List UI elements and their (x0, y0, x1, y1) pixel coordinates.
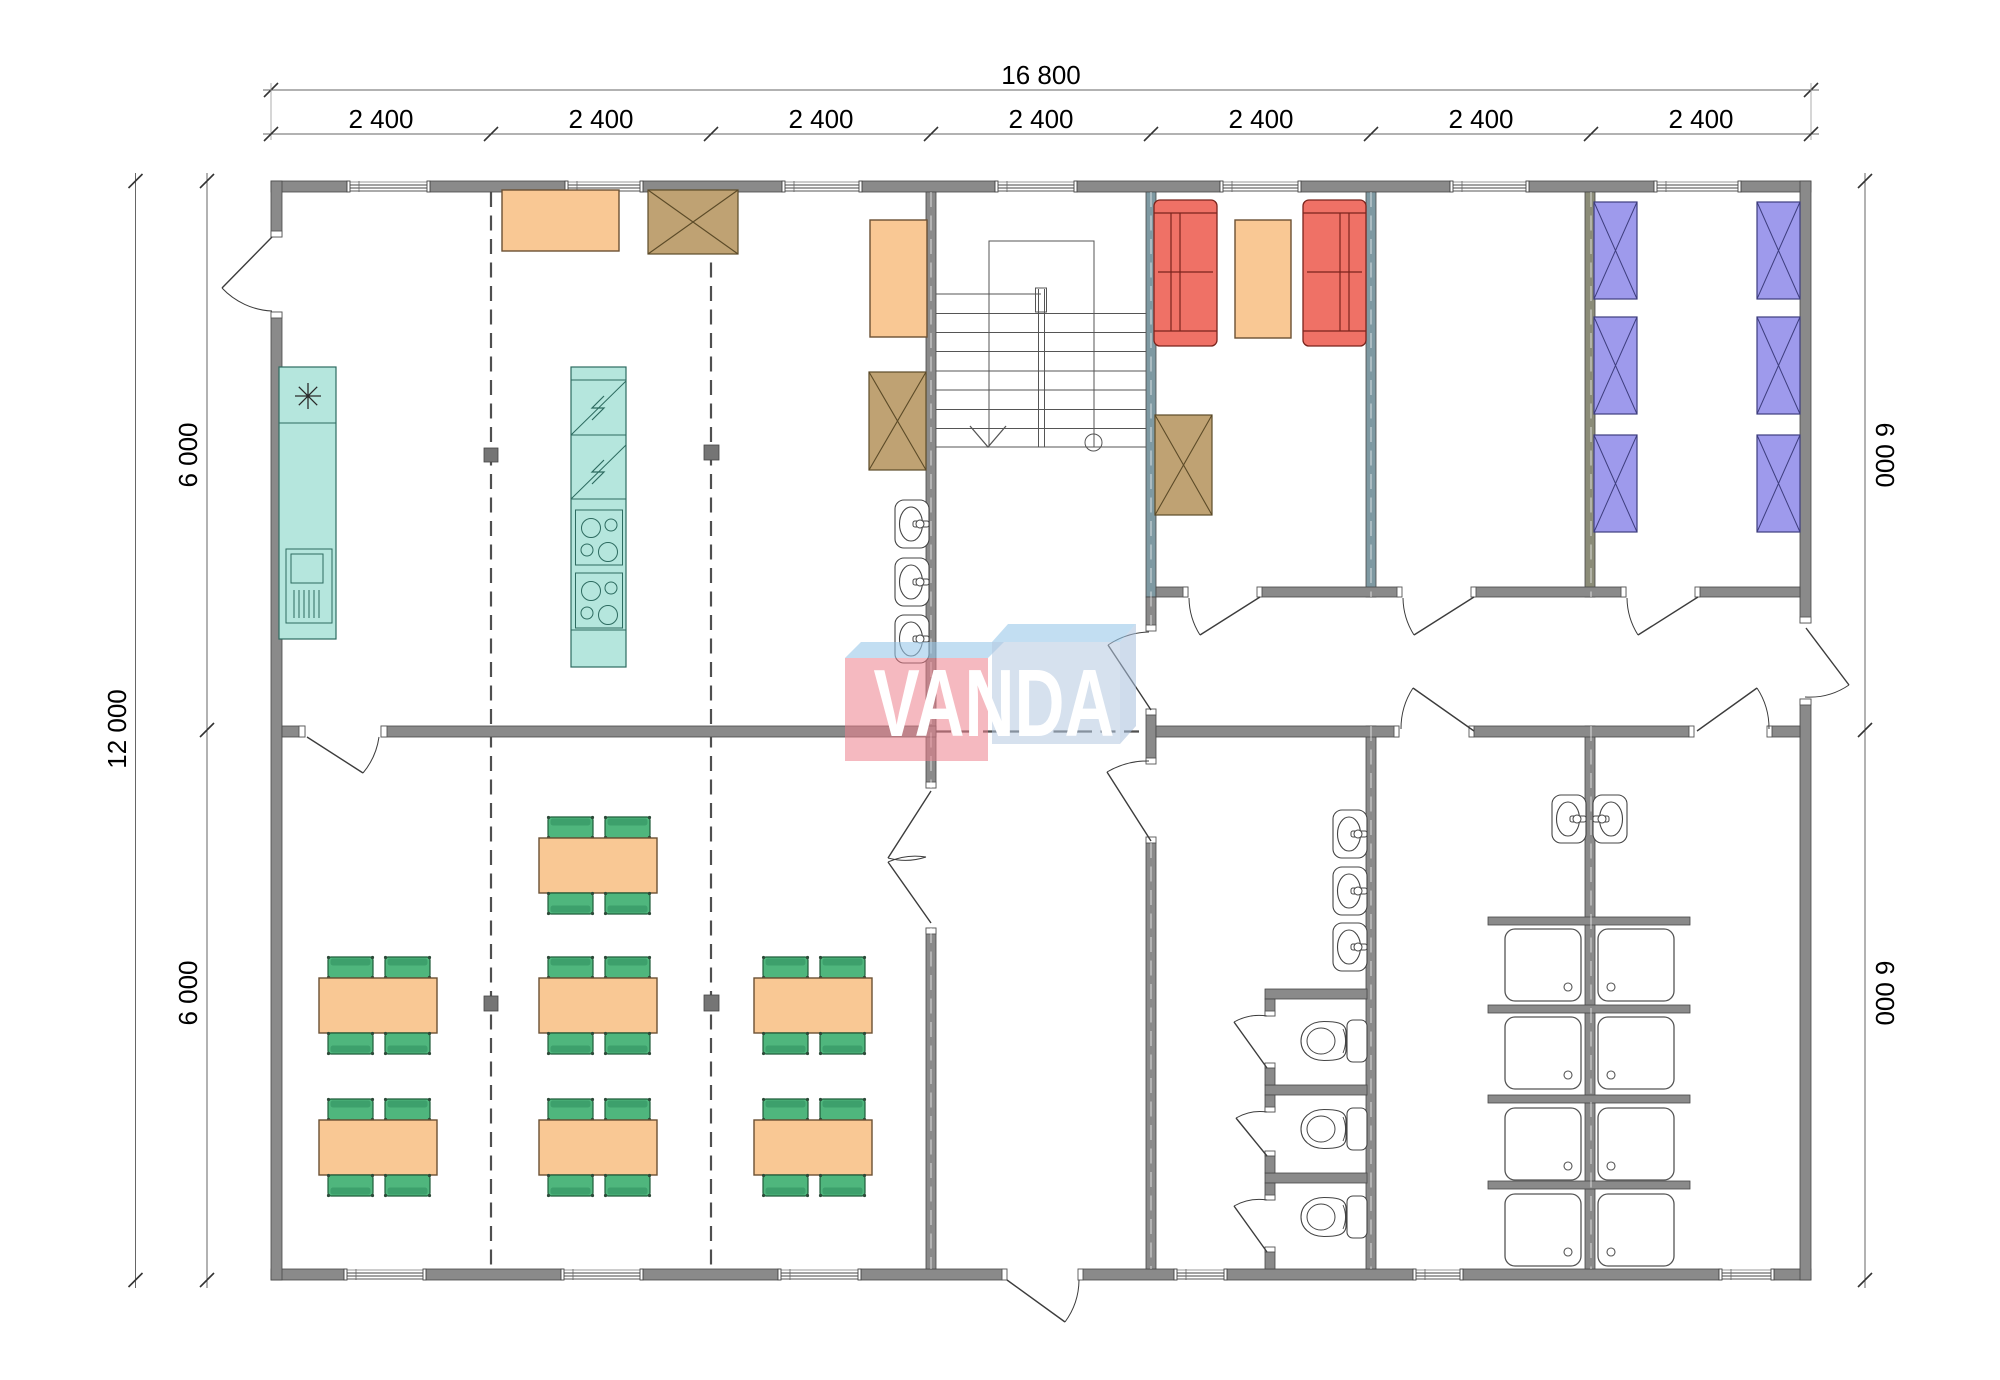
svg-text:6 000: 6 000 (173, 960, 203, 1025)
svg-text:2 400: 2 400 (1008, 104, 1073, 134)
svg-text:VANDA: VANDA (874, 650, 1115, 757)
svg-text:16 800: 16 800 (1001, 60, 1081, 90)
svg-text:2 400: 2 400 (788, 104, 853, 134)
svg-text:6 000: 6 000 (1870, 960, 1900, 1025)
svg-text:2 400: 2 400 (568, 104, 633, 134)
svg-text:2 400: 2 400 (348, 104, 413, 134)
svg-text:2 400: 2 400 (1448, 104, 1513, 134)
svg-text:6 000: 6 000 (1870, 422, 1900, 487)
svg-text:6 000: 6 000 (173, 422, 203, 487)
svg-text:2 400: 2 400 (1668, 104, 1733, 134)
svg-text:2 400: 2 400 (1228, 104, 1293, 134)
svg-text:12 000: 12 000 (102, 689, 132, 769)
